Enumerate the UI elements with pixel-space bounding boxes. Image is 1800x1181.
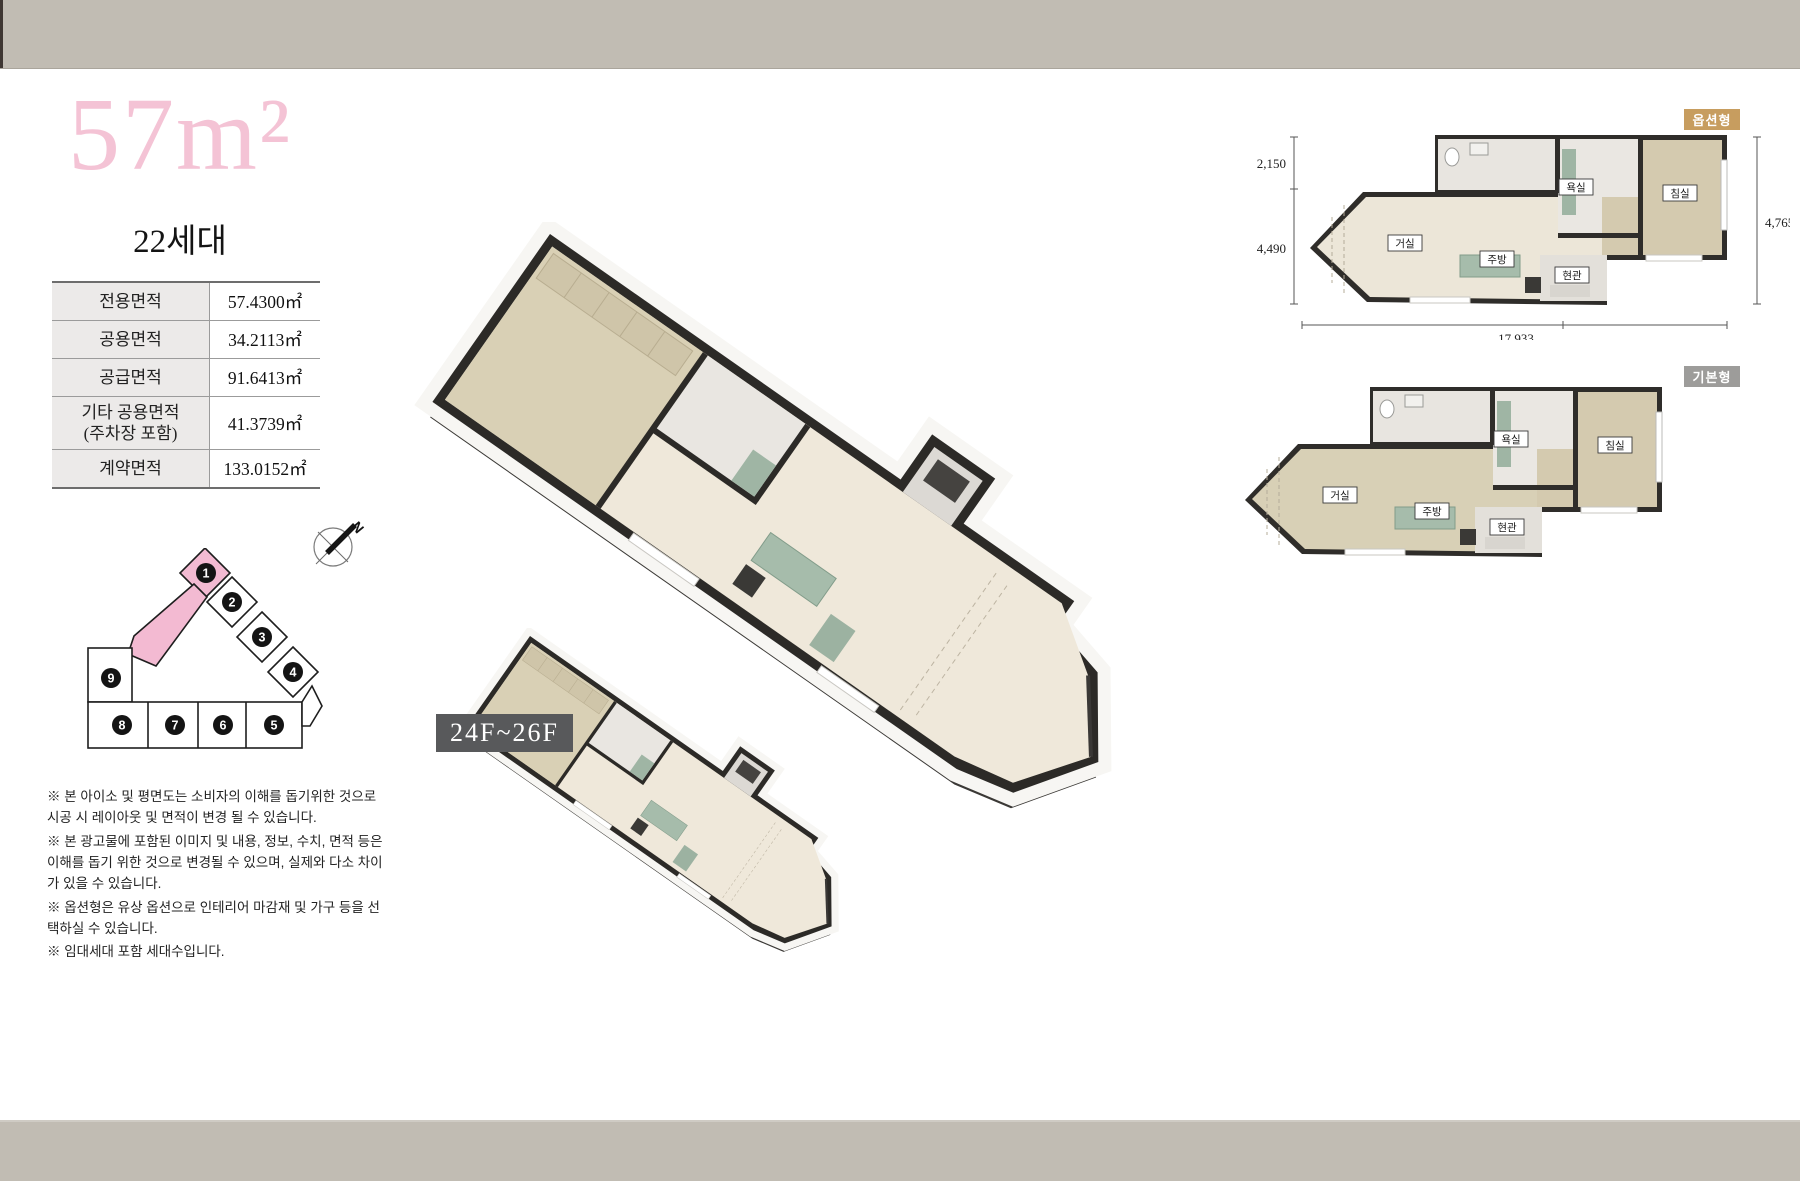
- disclaimer-line: ※ 옵션형은 유상 옵션으로 인테리어 마감재 및 가구 등을 선택하실 수 있…: [47, 897, 383, 940]
- area-row-value: 34.2113㎡: [210, 321, 320, 358]
- svg-text:3: 3: [259, 631, 266, 645]
- svg-text:2: 2: [229, 596, 236, 610]
- flat-plan-basic: [1185, 362, 1725, 592]
- area-table: 전용면적 57.4300㎡ 공용면적 34.2113㎡ 공급면적 91.6413…: [52, 281, 320, 489]
- area-row-value: 57.4300㎡: [210, 283, 320, 320]
- area-row-label: 공급면적: [52, 359, 210, 396]
- dim-bottom: 17,933: [1498, 331, 1534, 340]
- table-row: 전용면적 57.4300㎡: [52, 283, 320, 321]
- svg-text:1: 1: [203, 567, 210, 581]
- area-row-label: 공용면적: [52, 321, 210, 358]
- page-title: 57m²: [40, 78, 320, 192]
- unit-count-label: 22세대: [40, 214, 320, 262]
- disclaimer-notes: ※ 본 아이소 및 평면도는 소비자의 이해를 돕기위한 것으로 시공 시 레이…: [47, 786, 383, 965]
- option-type-badge: 옵션형: [1684, 109, 1740, 130]
- area-row-value: 91.6413㎡: [210, 359, 320, 396]
- svg-text:9: 9: [108, 672, 115, 686]
- site-row-end: [302, 686, 322, 726]
- basic-type-badge: 기본형: [1684, 366, 1740, 387]
- dim-right: 4,765: [1765, 215, 1790, 230]
- svg-text:7: 7: [172, 719, 179, 733]
- disclaimer-line: ※ 본 아이소 및 평면도는 소비자의 이해를 돕기위한 것으로 시공 시 레이…: [47, 786, 383, 829]
- area-row-label: 기타 공용면적 (주차장 포함): [52, 397, 210, 449]
- area-row-value: 41.3739㎡: [210, 397, 320, 449]
- area-row-value: 133.0152㎡: [210, 450, 320, 487]
- table-row: 계약면적 133.0152㎡: [52, 450, 320, 487]
- svg-text:5: 5: [271, 719, 278, 733]
- svg-text:6: 6: [220, 719, 227, 733]
- svg-text:8: 8: [119, 719, 126, 733]
- svg-text:4: 4: [290, 666, 297, 680]
- site-key-plan: 1 2 3 4 5 6 7 8 9: [70, 548, 330, 763]
- disclaimer-line: ※ 임대세대 포함 세대수입니다.: [47, 941, 383, 962]
- table-row: 공용면적 34.2113㎡: [52, 321, 320, 359]
- flat-plan-option: 2,150 4,490 4,765 17,933: [1250, 110, 1790, 340]
- site-unit-1-tail: [128, 584, 207, 666]
- floor-range-badge: 24F~26F: [436, 714, 573, 752]
- table-row: 기타 공용면적 (주차장 포함) 41.3739㎡: [52, 397, 320, 450]
- north-label: N: [349, 518, 367, 536]
- bottom-band: [0, 1120, 1800, 1181]
- iso-floorplan-lower: [450, 628, 990, 998]
- left-edge-accent: [0, 0, 3, 68]
- area-row-label: 계약면적: [52, 450, 210, 487]
- top-band: [0, 0, 1800, 69]
- dim-left-bottom: 4,490: [1257, 241, 1286, 256]
- area-row-label: 전용면적: [52, 283, 210, 320]
- table-row: 공급면적 91.6413㎡: [52, 359, 320, 397]
- dim-left-top: 2,150: [1257, 156, 1286, 171]
- disclaimer-line: ※ 본 광고물에 포함된 이미지 및 내용, 정보, 수치, 면적 등은 이해를…: [47, 831, 383, 895]
